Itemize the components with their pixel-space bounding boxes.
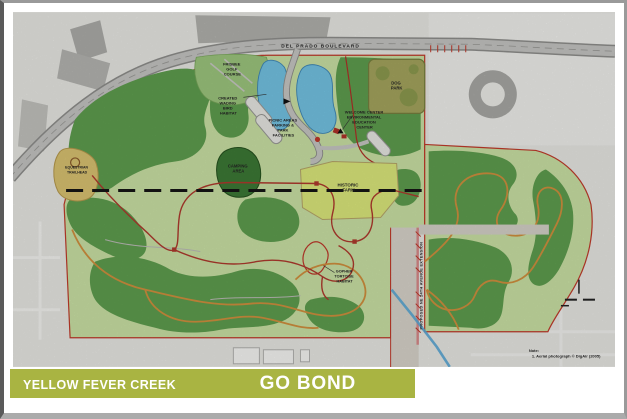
label-wading-bird-habitat: CREATED WADING BIRD HABITAT: [218, 95, 238, 115]
plan-title-main: GO BOND PLAN: [260, 369, 415, 419]
label-del-prado-boulevard: DEL PRADO BOULEVARD: [281, 43, 360, 49]
plan-title-bar: YELLOW FEVER CREEK PRESERVE: GO BOND PLA…: [10, 369, 415, 398]
plan-sheet: DEL PRADO BOULEVARD FRISBEE GOLF COURSE …: [0, 0, 627, 419]
grain-overlay: [13, 12, 615, 367]
label-equestrian-trailhead: EQUESTRIAN TRAILHEAD: [65, 165, 89, 174]
label-dog-park: DOG PARK: [391, 80, 403, 90]
svg-text:1. Aerial photograph © DigAir: 1. Aerial photograph © DigAir (2005): [532, 353, 601, 358]
label-avenue-extension: PROPOSED NE 24TH AVENUE EXTENSION: [420, 242, 424, 330]
label-picnic-areas: PICNIC AREAS PARKING & PARK FACILITIES: [269, 117, 299, 137]
label-gopher-tortoise: GOPHER TORTOISE HABITAT: [334, 270, 354, 284]
plan-title-prefix: YELLOW FEVER CREEK PRESERVE:: [23, 371, 253, 419]
site-plan-map: DEL PRADO BOULEVARD FRISBEE GOLF COURSE …: [13, 12, 615, 367]
svg-text:Note:: Note:: [529, 348, 539, 353]
site-plan-svg: DEL PRADO BOULEVARD FRISBEE GOLF COURSE …: [13, 12, 615, 367]
